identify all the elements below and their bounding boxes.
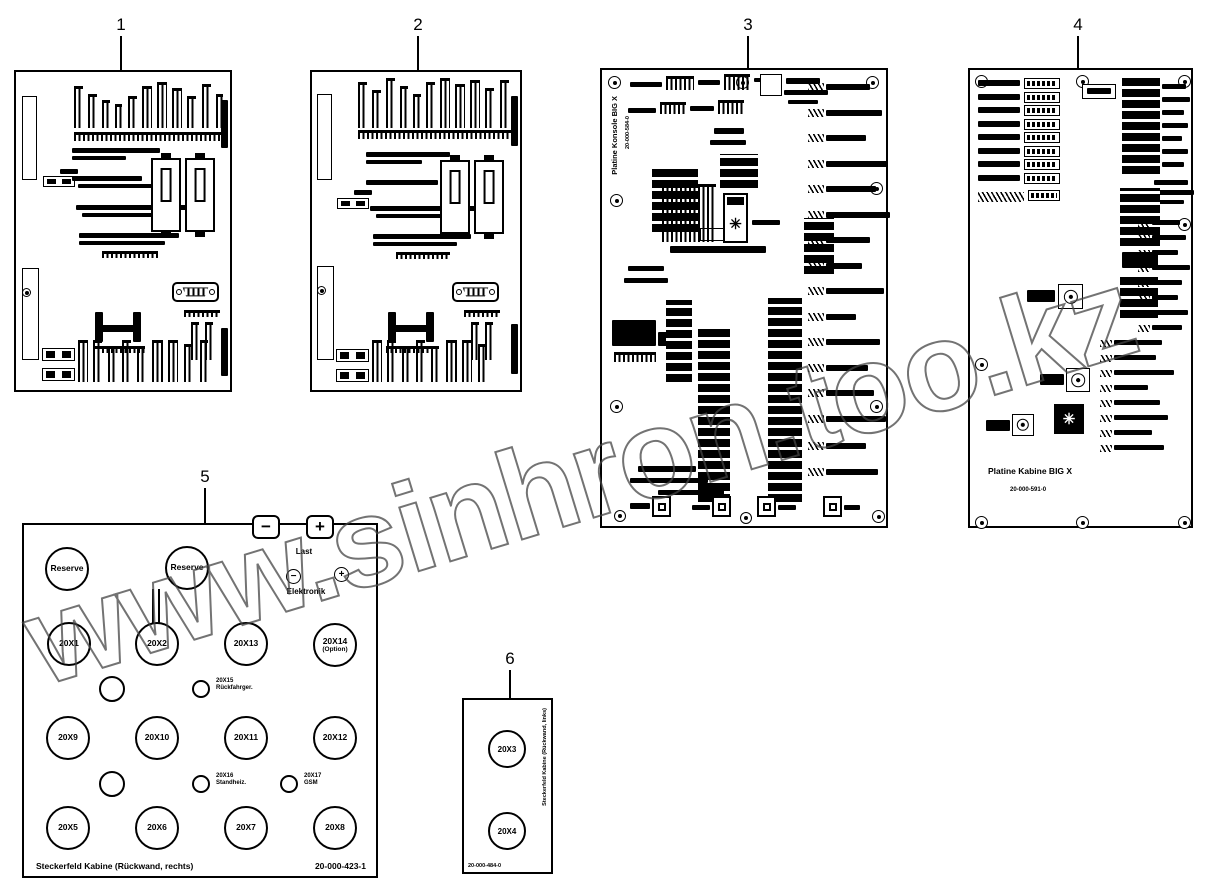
bar-pattern [826, 469, 878, 475]
bar-pattern [221, 328, 228, 376]
comb-pattern [440, 78, 450, 128]
comb-pattern [128, 96, 137, 128]
bar-pattern [72, 148, 160, 153]
connector-label: 20X12 [323, 733, 348, 742]
comb-pattern [74, 132, 224, 141]
ring-pattern [317, 286, 326, 295]
plus-icon: + [339, 569, 345, 580]
callout-4-line [1077, 36, 1079, 68]
jbox-pattern [43, 176, 75, 187]
connector-label: 20X2 [147, 639, 167, 648]
elektronik-plus-terminal: + [334, 567, 349, 582]
fbox-pattern [1024, 92, 1060, 103]
fbox-pattern [1024, 132, 1060, 143]
board-1 [14, 70, 232, 392]
connector-panel-6: 20X3 20X4 Steckerfeld Kabine (Rückwand, … [462, 698, 553, 874]
zig-pattern [808, 211, 824, 219]
callout-3-line [747, 36, 749, 68]
comb-pattern [446, 340, 457, 382]
last-label: Last [286, 547, 322, 556]
small-socket-1-label: 20X15Rückfahrger. [216, 678, 253, 692]
comb-pattern [470, 80, 480, 128]
ring-pattern [614, 510, 626, 522]
comb-pattern [142, 86, 152, 128]
connector-note: (Option) [322, 646, 347, 653]
snowflake-icon: ✳ [1063, 410, 1076, 428]
callout-6-line [509, 670, 511, 698]
zig-pattern [1138, 310, 1150, 317]
comb-pattern [387, 340, 396, 382]
comb-pattern [666, 76, 694, 90]
bar-pattern [1152, 295, 1178, 300]
hstack-pattern [720, 154, 758, 188]
bar-pattern [714, 128, 744, 134]
zig-pattern [1138, 220, 1150, 227]
comb-pattern [200, 340, 208, 382]
fbox-pattern [1024, 146, 1060, 157]
minus-icon: − [261, 517, 271, 537]
comb-pattern [718, 100, 744, 114]
callout-4-number: 4 [1073, 14, 1082, 36]
bar-pattern [1114, 340, 1162, 345]
jbox-pattern [42, 368, 75, 381]
bar-pattern [1152, 325, 1182, 330]
comb-pattern [102, 100, 110, 128]
ring-pattern [975, 358, 988, 371]
bar-pattern [638, 466, 696, 472]
zig-pattern [978, 192, 1024, 202]
comb-pattern [416, 340, 425, 382]
screwbox-pattern [1058, 284, 1083, 309]
callout-5-number: 5 [200, 466, 209, 488]
fbox-pattern [1024, 159, 1060, 170]
zig-pattern [808, 415, 824, 423]
connector-20x10: 20X10 [135, 716, 179, 760]
battery-plus-terminal: + [306, 515, 334, 539]
box-pattern [22, 268, 39, 360]
connector-reserve-1: Reserve [45, 547, 89, 591]
comb-pattern [152, 340, 163, 382]
connector-label: 20X14 [323, 637, 348, 646]
zig-pattern [808, 364, 824, 372]
bar-pattern [1114, 445, 1164, 450]
comb-pattern [187, 96, 196, 128]
bar-pattern [826, 135, 866, 141]
bar-pattern [1087, 88, 1111, 94]
zig-pattern [1100, 400, 1112, 407]
bar-pattern [826, 339, 880, 345]
bar-pattern [978, 161, 1020, 167]
comb-pattern [413, 94, 421, 128]
connector-label: 20X6 [147, 823, 167, 832]
comb-pattern [202, 84, 211, 128]
blank-socket [99, 676, 125, 702]
board-3-part-number: 20-000-584-0 [625, 116, 631, 149]
connector-label: 20X1 [59, 639, 79, 648]
comb-pattern [88, 94, 97, 128]
zig-pattern [1138, 250, 1150, 257]
bar-pattern [978, 94, 1020, 100]
connector-label: Reserve [50, 564, 83, 573]
bar-pattern [82, 213, 152, 217]
callout-1-line [120, 36, 122, 70]
bar-pattern [1040, 374, 1064, 385]
fbox-pattern [1028, 190, 1060, 201]
comb-pattern [724, 74, 750, 90]
ring-pattern [610, 194, 623, 207]
bar-pattern [373, 242, 457, 246]
comb-pattern [191, 322, 199, 360]
zig-pattern [1138, 325, 1150, 332]
jbox-pattern [336, 349, 369, 362]
connector-label: 20X5 [58, 823, 78, 832]
bar-pattern [1162, 110, 1184, 115]
comb-pattern [74, 86, 83, 128]
bar-pattern [826, 212, 890, 218]
plus-icon: + [315, 517, 325, 537]
ring-pattern [1178, 516, 1191, 529]
bar-pattern [826, 110, 882, 116]
zig-pattern [1100, 445, 1112, 452]
ring-pattern [608, 76, 621, 89]
bar-pattern [79, 241, 165, 245]
comb-pattern [372, 90, 381, 128]
screwbox-pattern [1012, 414, 1034, 436]
zig-pattern [1138, 295, 1150, 302]
comb-pattern [172, 88, 182, 128]
ring-pattern [22, 288, 31, 297]
connector-label: 20X7 [236, 823, 256, 832]
connector-20x8: 20X8 [313, 806, 357, 850]
vline-pattern [152, 589, 154, 623]
fbox-pattern [1024, 105, 1060, 116]
small-socket-2 [192, 775, 210, 793]
comb-pattern [102, 251, 158, 258]
connector-20x6: 20X6 [135, 806, 179, 850]
battery-minus-terminal: − [252, 515, 280, 539]
panel-5-part-number: 20-000-423-1 [315, 861, 366, 871]
ring-pattern [740, 512, 752, 524]
bar-pattern [710, 140, 746, 145]
connector-panel-5: − + Last − + Elektronik Reserve Reserve … [22, 523, 378, 878]
bar-pattern [60, 169, 78, 174]
comb-pattern [500, 80, 509, 128]
zig-pattern [808, 389, 824, 397]
bar-pattern [1158, 200, 1184, 204]
bar-pattern [1162, 136, 1182, 141]
comb-pattern [662, 184, 716, 242]
connector-label: 20X11 [234, 733, 258, 742]
connector-label: 20X3 [498, 745, 517, 754]
jbox-pattern [336, 369, 369, 382]
bar-pattern [826, 416, 886, 422]
bar-pattern [826, 390, 874, 396]
zig-pattern [1138, 235, 1150, 242]
diagram-page: 1 2 3 4 5 6 Platine Konsole BIG X 20-000… [0, 0, 1214, 894]
minus-icon: − [291, 571, 297, 582]
bar-pattern [1154, 190, 1194, 195]
panel-5-title: Steckerfeld Kabine (Rückwand, rechts) [36, 861, 193, 871]
connector-20x4: 20X4 [488, 812, 526, 850]
zig-pattern [1100, 340, 1112, 347]
bar-pattern [630, 503, 650, 509]
bar-pattern [826, 186, 876, 192]
panel-6-part-number: 20-000-484-0 [468, 863, 501, 869]
comb-pattern [400, 86, 408, 128]
bar-pattern [628, 266, 664, 271]
zig-pattern [808, 83, 824, 91]
callout-1-number: 1 [116, 14, 125, 36]
ring-pattern [872, 510, 885, 523]
zig-pattern [808, 338, 824, 346]
bar-pattern [978, 80, 1020, 86]
comb-pattern [426, 82, 435, 128]
small-socket-3 [280, 775, 298, 793]
small-socket-2-label: 20X16Standheiz. [216, 773, 246, 787]
bar-pattern [366, 152, 450, 157]
bar-pattern [826, 365, 868, 371]
relay-pattern [185, 158, 215, 232]
connector-label: Reserve [170, 563, 203, 572]
bar-pattern [1162, 97, 1190, 102]
comb-pattern [122, 340, 131, 382]
comb-pattern [184, 310, 220, 317]
zig-pattern [1100, 430, 1112, 437]
bar-pattern [612, 320, 656, 346]
zig-pattern [1100, 385, 1112, 392]
elektronik-label: Elektronik [276, 587, 336, 596]
fbox-pattern [1024, 78, 1060, 89]
hstack-pattern [768, 298, 802, 502]
bar-pattern [388, 325, 434, 332]
callout-4: 4 [1066, 14, 1090, 68]
snowflake-icon: ✳ [729, 215, 742, 233]
bar-pattern [1114, 385, 1148, 390]
connector-label: 20X9 [58, 733, 78, 742]
bar-pattern [376, 214, 442, 218]
connector-20x9: 20X9 [46, 716, 90, 760]
comb-pattern [455, 84, 465, 128]
comb-pattern [462, 340, 472, 382]
comb-pattern [168, 340, 178, 382]
bar-pattern [844, 505, 860, 510]
zig-pattern [1138, 265, 1150, 272]
bar-pattern [978, 107, 1020, 113]
box-pattern [22, 96, 37, 180]
comb-pattern [485, 322, 493, 360]
bar-pattern [826, 288, 884, 294]
bar-pattern [1152, 310, 1188, 315]
comb-pattern [402, 346, 410, 382]
zig-pattern [1100, 415, 1112, 422]
snow-pattern: ✳ [723, 193, 748, 243]
box-pattern [317, 94, 332, 180]
connector-20x1: 20X1 [47, 622, 91, 666]
callout-6: 6 [498, 648, 522, 698]
panel-6-side-text: Steckerfeld Kabine (Rückwand, links) [542, 708, 548, 806]
bar-pattern [1162, 84, 1186, 89]
callout-2-line [417, 36, 419, 70]
board-3-platine-konsole: Platine Konsole BIG X 20-000-584-0 ✳ [600, 68, 888, 528]
box-pattern [317, 266, 334, 360]
board-4-part-number: 20-000-591-0 [1010, 487, 1046, 493]
comb-pattern [660, 102, 686, 114]
fbox-pattern [1024, 173, 1060, 184]
bar-pattern [1162, 149, 1188, 154]
box-pattern [760, 74, 782, 96]
bar-pattern [1152, 220, 1180, 225]
bar-pattern [72, 176, 142, 181]
relay-pattern [474, 160, 504, 234]
comb-pattern [396, 252, 450, 259]
bar-pattern [978, 121, 1020, 127]
callout-5-line [204, 488, 206, 523]
callout-1: 1 [109, 14, 133, 70]
sq-pattern [757, 496, 776, 517]
bar-pattern [366, 180, 438, 185]
connector-label: 20X13 [234, 639, 259, 648]
bar-pattern [511, 96, 518, 146]
callout-2-number: 2 [413, 14, 422, 36]
bar-pattern [366, 160, 422, 164]
board-4-title: Platine Kabine BIG X [988, 466, 1072, 476]
hstack-pattern [698, 326, 730, 502]
bar-pattern [1114, 415, 1168, 420]
bar-pattern [1114, 430, 1152, 435]
snowbox-pattern: ✳ [1054, 404, 1084, 434]
sq-pattern [712, 496, 731, 517]
zig-pattern [1138, 280, 1150, 287]
board-3-title: Platine Konsole BIG X [610, 96, 619, 175]
board-4-platine-kabine: Platine Kabine BIG X 20-000-591-0 ✳ [968, 68, 1193, 528]
comb-pattern [464, 310, 500, 317]
bar-pattern [690, 106, 714, 111]
bar-pattern [1152, 250, 1178, 255]
callout-5: 5 [193, 466, 217, 523]
connector-label: 20X8 [325, 823, 345, 832]
bar-pattern [788, 100, 818, 104]
connector-label: 20X4 [498, 827, 517, 836]
board-2 [310, 70, 522, 392]
comb-pattern [431, 346, 439, 382]
bar-pattern [826, 443, 866, 449]
comb-pattern [485, 88, 494, 128]
bar-pattern [630, 478, 708, 483]
zig-pattern [808, 442, 824, 450]
comb-pattern [358, 130, 516, 139]
dsub-pattern [452, 282, 499, 302]
hstack-pattern [666, 300, 692, 382]
connector-20x11: 20X11 [224, 716, 268, 760]
bar-pattern [826, 263, 862, 269]
jbox-pattern [337, 198, 369, 209]
vline-pattern [158, 589, 160, 623]
bar-pattern [778, 505, 796, 510]
comb-pattern [386, 78, 395, 128]
connector-20x14: 20X14(Option) [313, 623, 357, 667]
bar-pattern [1152, 265, 1190, 270]
bar-pattern [511, 324, 518, 374]
callout-6-number: 6 [505, 648, 514, 670]
zig-pattern [1100, 370, 1112, 377]
comb-pattern [157, 82, 167, 128]
zig-pattern [808, 236, 824, 244]
relay-pattern [151, 158, 181, 232]
bar-pattern [986, 420, 1010, 431]
bar-pattern [1162, 123, 1188, 128]
comb-pattern [358, 82, 367, 128]
comb-pattern [108, 346, 116, 382]
connector-20x2: 20X2 [135, 622, 179, 666]
connector-20x7: 20X7 [224, 806, 268, 850]
bar-pattern [826, 237, 870, 243]
bar-pattern [978, 175, 1020, 181]
jbox-pattern [42, 348, 75, 361]
comb-pattern [372, 340, 382, 382]
comb-pattern [184, 344, 192, 382]
fbox-pattern [1024, 119, 1060, 130]
zig-pattern [1100, 355, 1112, 362]
bar-pattern [1114, 370, 1174, 375]
bar-pattern [624, 278, 668, 283]
sq-pattern [823, 496, 842, 517]
zig-pattern [808, 287, 824, 295]
zig-pattern [808, 262, 824, 270]
connector-20x12: 20X12 [313, 716, 357, 760]
bar-pattern [826, 161, 888, 167]
bar-pattern [826, 84, 870, 90]
screwbox-pattern [1066, 368, 1090, 392]
ring-pattern [1076, 516, 1089, 529]
bar-pattern [826, 314, 856, 320]
bar-pattern [978, 134, 1020, 140]
comb-pattern [478, 344, 486, 382]
connector-reserve-2: Reserve [165, 546, 209, 590]
sq-pattern [652, 496, 671, 517]
ring-pattern [610, 400, 623, 413]
bar-pattern [354, 190, 372, 195]
zig-pattern [808, 468, 824, 476]
bar-pattern [1152, 235, 1186, 240]
bar-pattern [628, 108, 656, 113]
relay-pattern [440, 160, 470, 234]
bar-pattern [221, 100, 228, 148]
bar-pattern [670, 246, 766, 253]
bar-pattern [630, 82, 662, 87]
comb-pattern [614, 352, 656, 362]
connector-20x13: 20X13 [224, 622, 268, 666]
bar-pattern [698, 80, 720, 85]
elektronik-minus-terminal: − [286, 569, 301, 584]
zig-pattern [808, 185, 824, 193]
ring-pattern [975, 516, 988, 529]
blank-socket [99, 771, 125, 797]
small-socket-3-label: 20X17GSM [304, 773, 321, 787]
hstack-pattern [1122, 78, 1160, 174]
connector-label: 20X10 [145, 733, 170, 742]
bar-pattern [752, 220, 780, 225]
dsub-pattern [172, 282, 219, 302]
zig-pattern [808, 134, 824, 142]
small-socket-1 [192, 680, 210, 698]
comb-pattern [93, 340, 102, 382]
zig-pattern [808, 109, 824, 117]
connector-20x3: 20X3 [488, 730, 526, 768]
bar-pattern [1162, 162, 1184, 167]
bar-pattern [1154, 180, 1188, 185]
ring-pattern [870, 400, 883, 413]
comb-pattern [78, 340, 88, 382]
